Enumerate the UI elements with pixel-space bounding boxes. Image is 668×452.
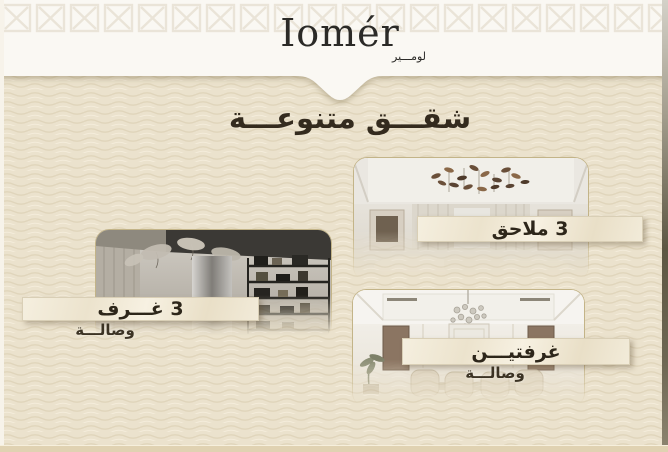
bottom-edge-strip — [0, 445, 668, 452]
card-three-rooms[interactable]: 3 غـــرف وصالـــة — [22, 229, 330, 345]
banner-two-rooms: غرفتيـــن — [402, 338, 630, 365]
banner-two-rooms-label: غرفتيـــن — [471, 341, 560, 363]
banner-annexes-label: 3 ملاحق — [492, 218, 569, 240]
left-edge-strip — [0, 0, 4, 452]
right-edge-strip — [662, 0, 668, 452]
two-rooms-sublabel: وصالـــة — [425, 364, 565, 382]
brand-logo-latin: Iomér — [240, 14, 440, 54]
page-title: شقـــق متنوعـــة — [180, 101, 520, 135]
banner-annexes: 3 ملاحق — [417, 216, 643, 242]
flyer-canvas: Iomér لومـــير شقـــق متنوعـــة — [0, 0, 668, 452]
banner-three-rooms: 3 غـــرف — [22, 297, 259, 321]
three-rooms-sublabel: وصالـــة — [30, 321, 180, 339]
banner-three-rooms-label: 3 غـــرف — [97, 298, 183, 320]
card-two-rooms[interactable]: غرفتيـــن وصالـــة — [352, 289, 628, 410]
card-annexes[interactable]: 3 ملاحق — [353, 157, 641, 283]
brand-logo: Iomér لومـــير — [240, 14, 440, 63]
